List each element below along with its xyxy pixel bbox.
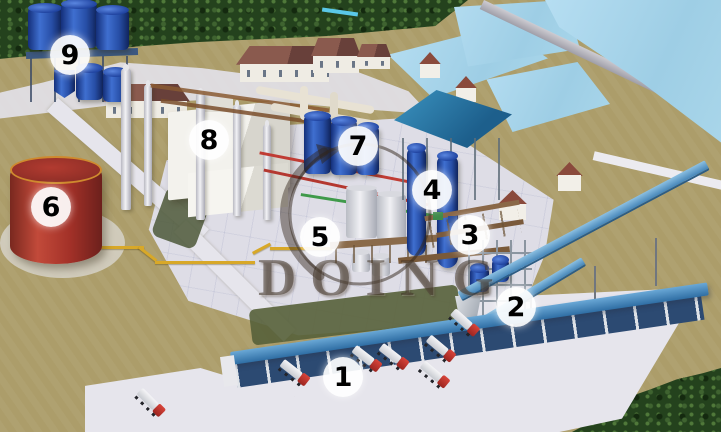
- storehouse-small: [357, 44, 391, 69]
- process-column: [121, 68, 131, 210]
- marker-7: 7: [338, 126, 378, 166]
- marker-6: 6: [31, 187, 71, 227]
- guard-house: [553, 162, 586, 191]
- roof: [553, 162, 586, 176]
- wall: [558, 175, 582, 191]
- wall: [313, 56, 359, 74]
- roof: [357, 44, 391, 57]
- plant-3d-render: DOING 1 2 3 4 5 6 7 8 9: [0, 0, 721, 432]
- roof: [311, 38, 361, 56]
- ground-blue-tank: [76, 68, 103, 100]
- red-tank-top: [10, 156, 102, 184]
- marker-5: 5: [300, 217, 340, 257]
- process-column: [233, 104, 241, 216]
- marker-2: 2: [496, 287, 536, 327]
- wall: [420, 64, 440, 78]
- doing-watermark-text: DOING: [258, 248, 508, 308]
- marker-9: 9: [50, 35, 90, 75]
- conveyor-leg: [655, 238, 657, 286]
- marker-4: 4: [412, 170, 452, 210]
- elevated-blue-tank: [96, 10, 129, 50]
- marker-3: 3: [450, 215, 490, 255]
- pump-house: [416, 52, 444, 78]
- workshop-building: [311, 38, 361, 73]
- marker-8: 8: [189, 120, 229, 160]
- oil-pipeline-segment: [155, 261, 255, 264]
- process-column: [144, 84, 152, 206]
- roof: [416, 52, 444, 64]
- wall: [358, 57, 389, 70]
- marker-1: 1: [323, 357, 363, 397]
- roof: [452, 76, 480, 88]
- oil-pipeline-segment: [138, 246, 157, 262]
